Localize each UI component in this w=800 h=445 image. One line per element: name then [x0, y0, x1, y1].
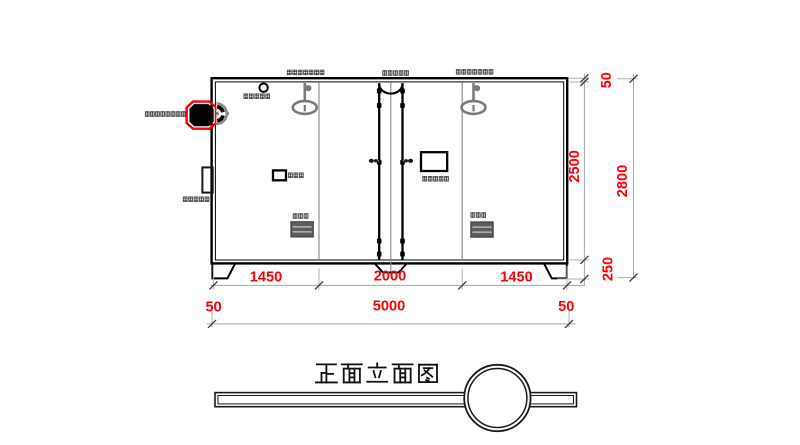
- svg-text:1450: 1450: [500, 270, 532, 286]
- svg-text:50: 50: [205, 300, 221, 316]
- svg-text:2000: 2000: [374, 269, 406, 285]
- svg-text:5000: 5000: [373, 299, 405, 315]
- svg-text:1450: 1450: [250, 269, 282, 285]
- svg-text:2500: 2500: [567, 150, 583, 182]
- svg-text:2800: 2800: [615, 165, 631, 197]
- svg-text:50: 50: [599, 72, 615, 88]
- svg-text:50: 50: [558, 299, 574, 315]
- svg-text:250: 250: [601, 257, 617, 281]
